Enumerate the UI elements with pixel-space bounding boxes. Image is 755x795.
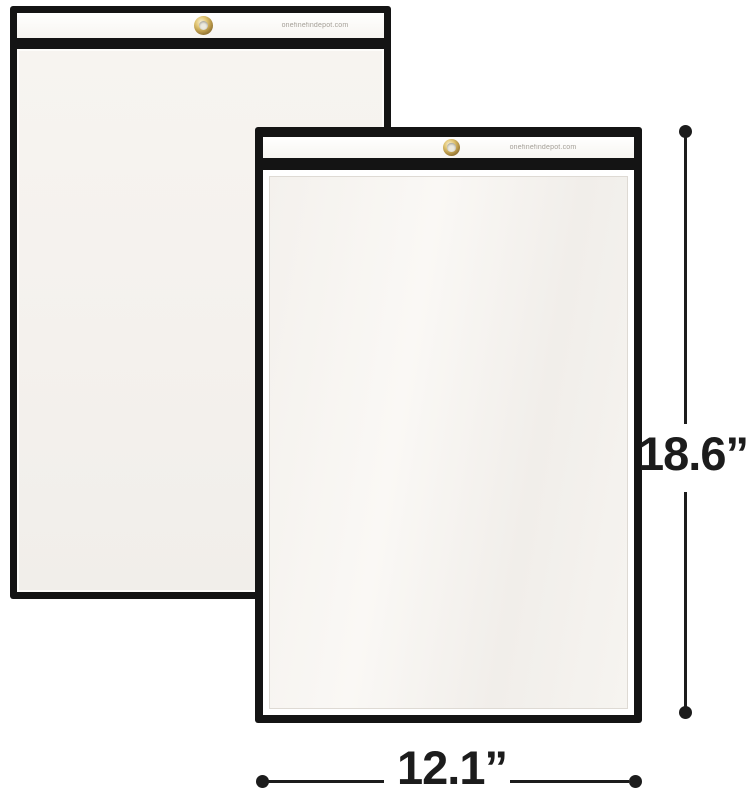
dimension-line-segment <box>268 780 384 783</box>
height-dimension-label: 18.6” <box>618 430 755 477</box>
grommet-icon <box>194 16 213 35</box>
dimension-endpoint-dot <box>629 775 642 788</box>
dimension-line-segment <box>684 136 687 424</box>
product-image-canvas: onefinefindepot.com onefinefindepot.com … <box>0 0 755 795</box>
dimension-line-segment <box>510 780 629 783</box>
front-clear-panel <box>269 176 628 709</box>
watermark-text: onefinefindepot.com <box>486 137 600 158</box>
back-stitch-bar <box>10 38 391 49</box>
watermark-text: onefinefindepot.com <box>258 13 372 38</box>
front-ticket-holder: onefinefindepot.com <box>255 127 642 723</box>
width-dimension-label: 12.1” <box>392 744 512 791</box>
dimension-endpoint-dot <box>679 706 692 719</box>
front-stitch-bar <box>255 158 642 170</box>
front-inner-margin <box>263 170 634 715</box>
front-header-strip: onefinefindepot.com <box>263 137 634 158</box>
grommet-icon <box>443 139 460 156</box>
back-header-strip: onefinefindepot.com <box>17 13 384 38</box>
dimension-line-segment <box>684 492 687 708</box>
